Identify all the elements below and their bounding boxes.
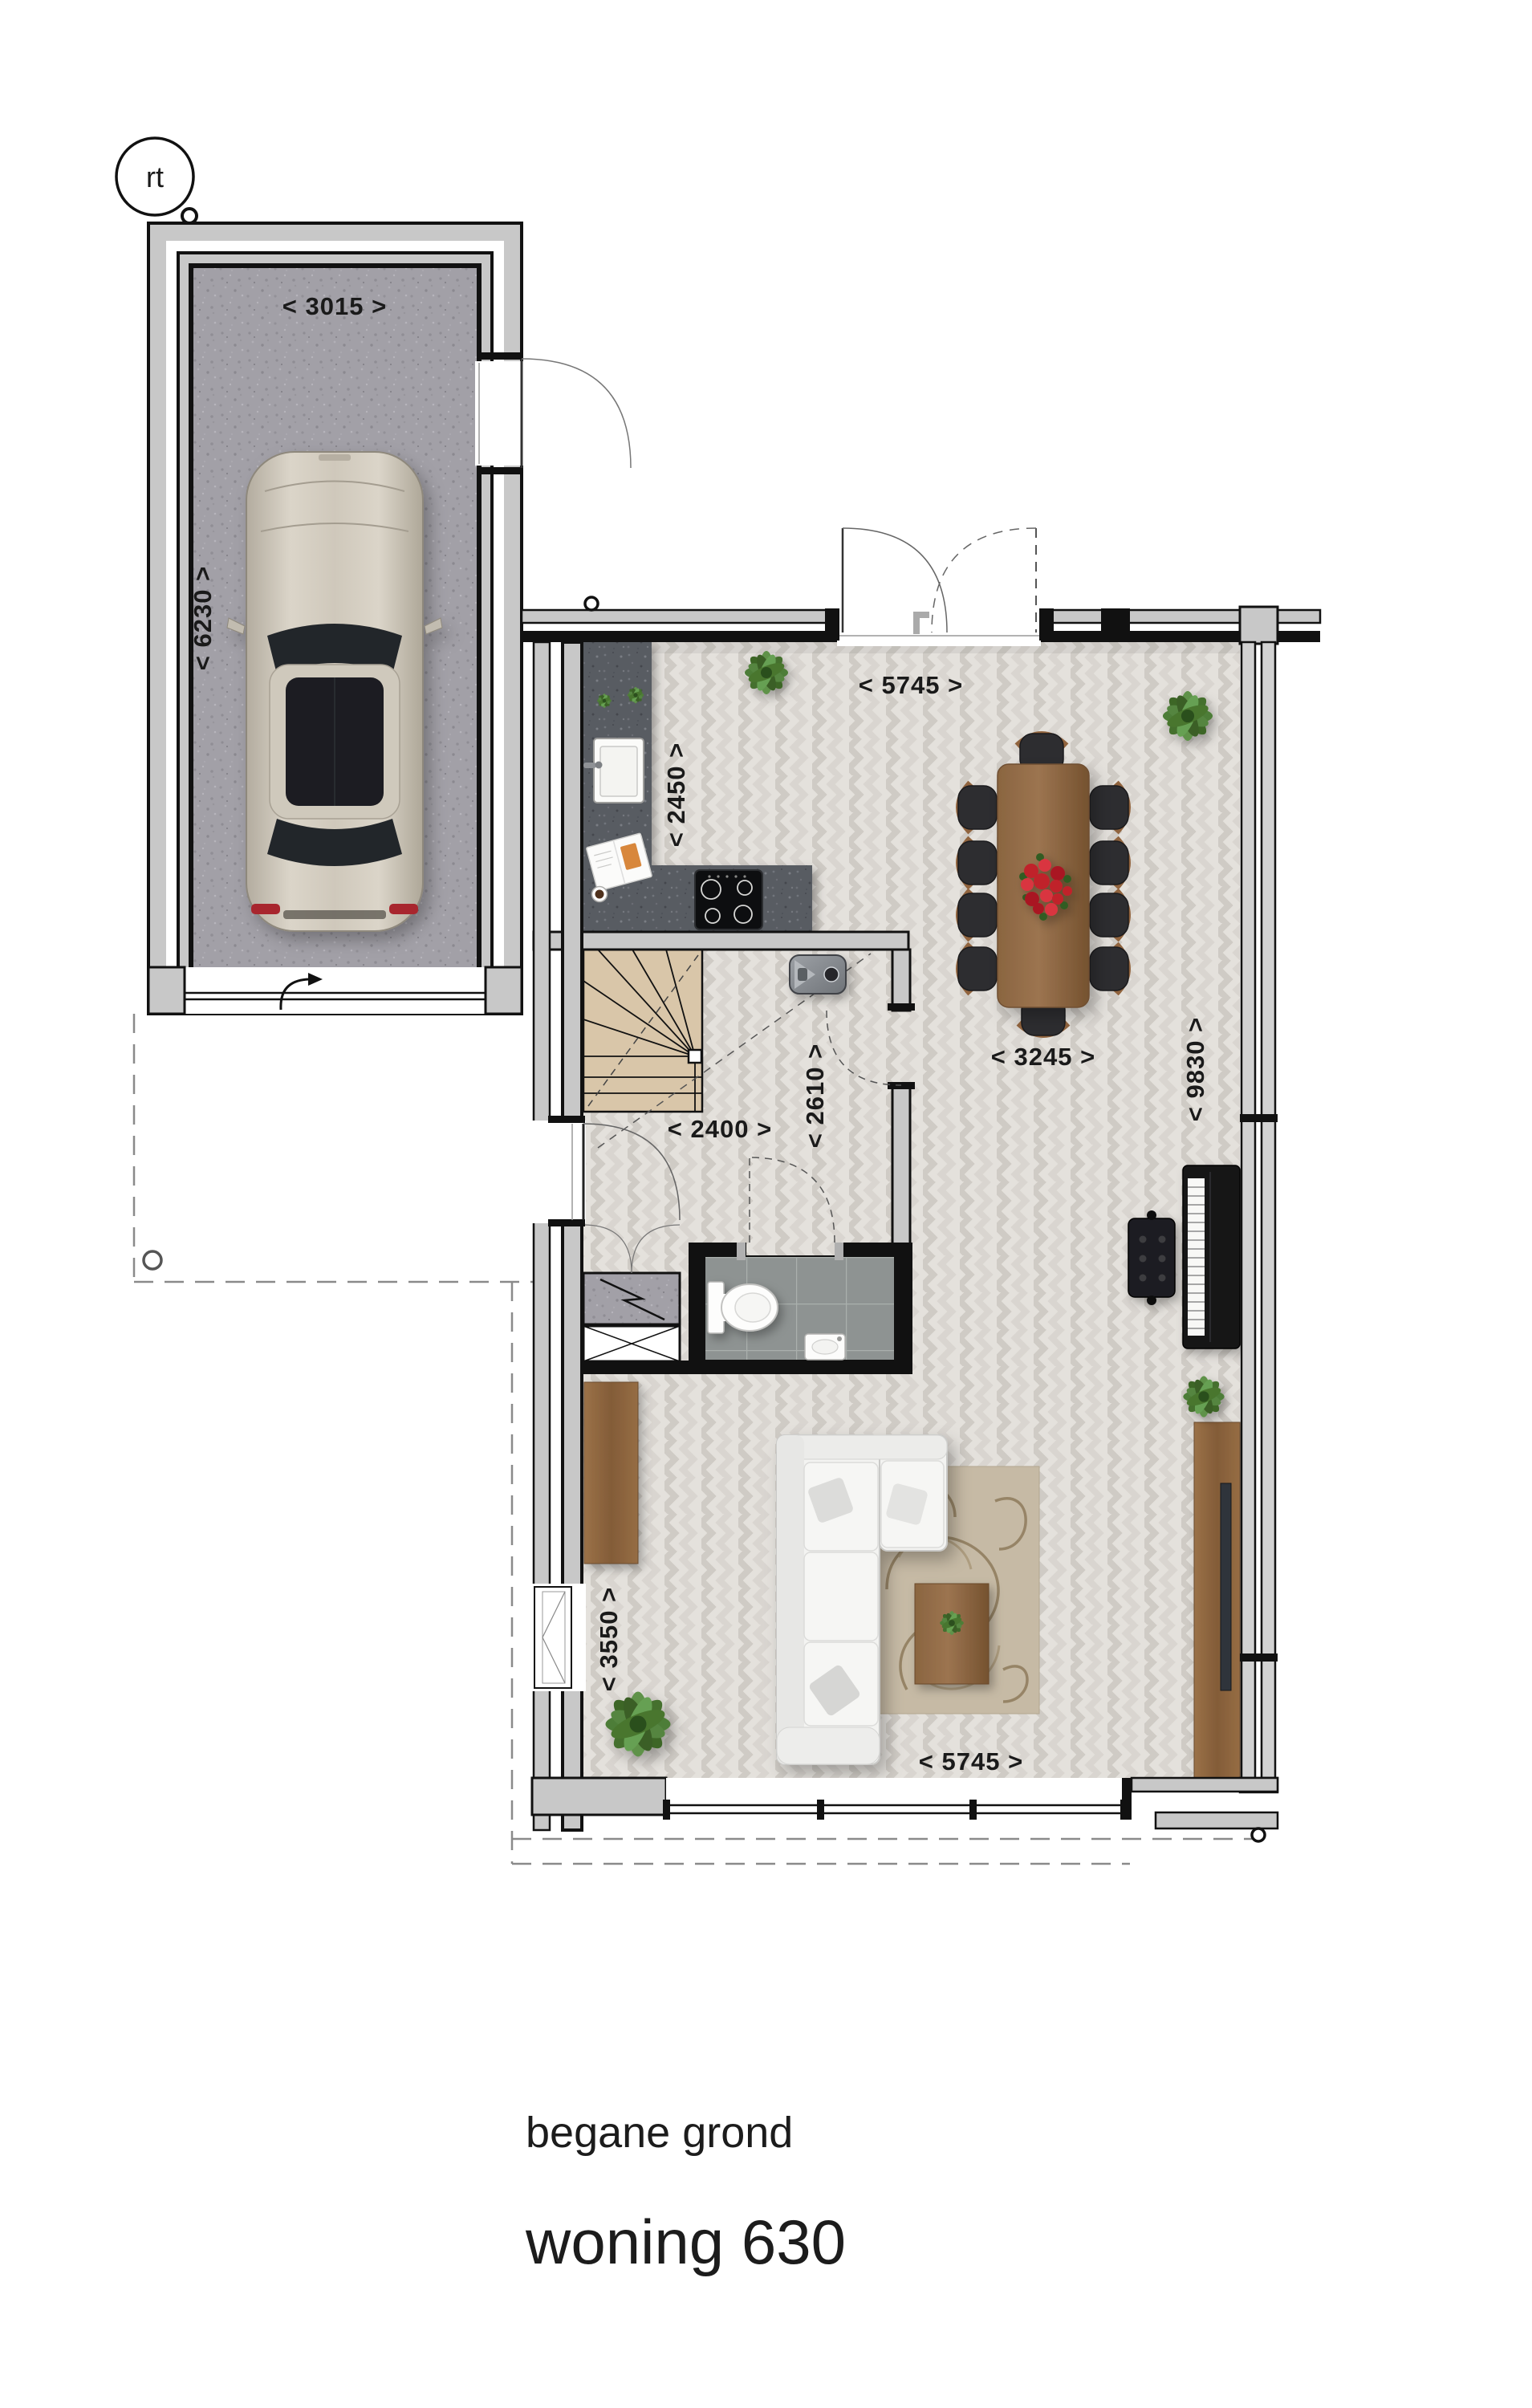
shaft xyxy=(583,1326,680,1361)
entrance-door-opening xyxy=(528,1121,586,1223)
floorplan-page: < 3015 > < 6230 > rt xyxy=(0,0,1532,2408)
garage-corner-right xyxy=(486,967,522,1014)
car xyxy=(227,452,442,931)
dim-garage-depth: < 6230 > xyxy=(189,566,217,670)
garage-side-door-opening xyxy=(475,361,525,466)
floorplan-drawing: < 3015 > < 6230 > rt xyxy=(0,0,1532,2408)
dim-hall-depth: < 2610 > xyxy=(801,1043,829,1148)
drain-dot-driveway xyxy=(144,1251,161,1269)
dim-kitchen-depth: < 2450 > xyxy=(662,742,690,847)
car-taillight-left xyxy=(251,904,280,914)
coffee-table xyxy=(915,1584,989,1684)
rt-marker: rt xyxy=(116,138,197,223)
garage-corner-left xyxy=(148,967,185,1014)
counter-plant-icon xyxy=(597,694,612,708)
hall-living-wall xyxy=(582,1361,912,1374)
counter-plant-icon xyxy=(628,687,644,704)
dim-room-width-top: < 5745 > xyxy=(859,671,963,699)
top-wall-pier xyxy=(1101,608,1130,642)
dim-garage-width: < 3015 > xyxy=(282,292,387,320)
stairs xyxy=(583,950,702,1112)
dining-chair xyxy=(1090,891,1128,939)
dim-room-depth: < 9830 > xyxy=(1181,1017,1209,1121)
drain-dot-house xyxy=(585,597,598,610)
garage-side-door-swing xyxy=(522,359,631,468)
dim-room-width-bottom: < 5745 > xyxy=(919,1747,1023,1775)
toilet-fixture xyxy=(708,1282,778,1333)
floor-title: begane grond xyxy=(526,2109,793,2157)
kitchen-hall-wall xyxy=(534,932,908,950)
hall-dining-wall-lower xyxy=(892,1085,910,1246)
dim-hall-width: < 2400 > xyxy=(668,1115,772,1143)
drain-dot-garage xyxy=(182,209,197,223)
piano-bench xyxy=(1128,1210,1175,1305)
faucet-icon xyxy=(583,763,596,768)
dining-chair xyxy=(1090,839,1128,887)
right-window-band-outer xyxy=(1262,642,1275,1778)
dim-living-left: < 3550 > xyxy=(595,1587,623,1691)
tv-console xyxy=(1194,1422,1240,1778)
drain-dot-living xyxy=(1252,1828,1265,1841)
sideboard xyxy=(584,1382,638,1564)
rt-marker-label: rt xyxy=(146,161,164,193)
bottom-right-sill-inner xyxy=(1132,1778,1278,1792)
dining-chair xyxy=(1090,945,1128,993)
plant-entrance xyxy=(745,651,788,694)
plant-fern xyxy=(606,1692,671,1757)
stair-newel xyxy=(689,1050,701,1063)
plant-piano xyxy=(1183,1376,1224,1417)
car-taillight-right xyxy=(389,904,418,914)
bottom-right-sill-outer xyxy=(1156,1812,1278,1828)
left-window-frame xyxy=(534,1587,571,1688)
plant-dining xyxy=(1163,691,1213,741)
table-plant-icon xyxy=(940,1611,964,1635)
garage-door-opening xyxy=(183,967,487,1014)
vacuum-robot xyxy=(790,955,846,994)
bottom-window-jamb xyxy=(1122,1778,1132,1820)
dim-dining-width: < 3245 > xyxy=(991,1043,1095,1071)
dining-chair xyxy=(958,839,997,887)
front-double-door-opening xyxy=(837,606,1041,646)
bottom-left-corner xyxy=(532,1778,666,1815)
hall-dining-wall-upper xyxy=(892,950,910,1011)
piano xyxy=(1183,1165,1240,1348)
dining-chair xyxy=(958,945,997,993)
dining-chair xyxy=(958,891,997,939)
tv-screen xyxy=(1221,1483,1231,1690)
toilet-basin xyxy=(805,1334,845,1360)
right-window-band-inner xyxy=(1241,642,1255,1778)
unit-title: woning 630 xyxy=(525,2207,846,2277)
driveway-outline xyxy=(134,1014,534,1282)
top-right-corner xyxy=(1240,607,1278,644)
cooktop xyxy=(695,870,762,929)
dining-chair xyxy=(958,783,997,832)
dining-chair xyxy=(1090,783,1128,832)
